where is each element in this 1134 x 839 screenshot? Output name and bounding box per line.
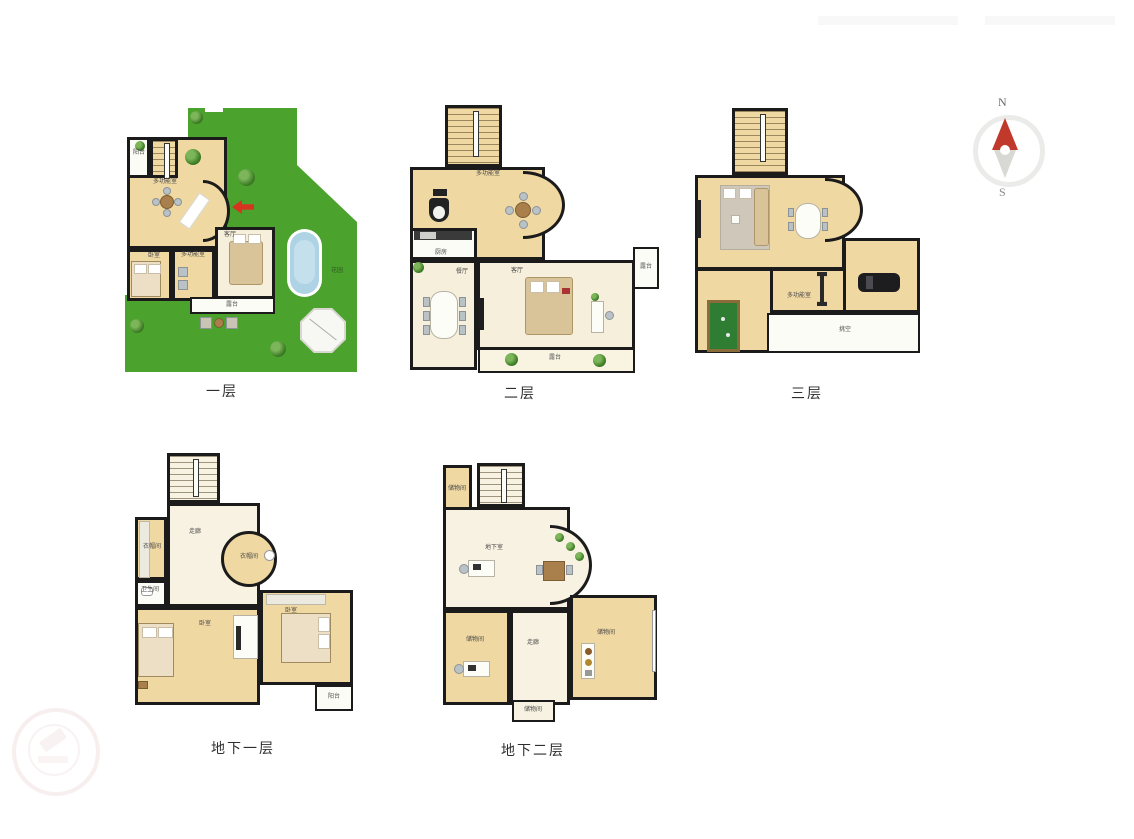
chair-icon <box>788 208 794 217</box>
room-label: 餐厅 <box>456 269 468 275</box>
table-icon <box>543 561 565 581</box>
desk-icon <box>591 301 604 333</box>
room-label: 卧室 <box>285 608 297 614</box>
room-curve <box>825 178 863 242</box>
tv-icon <box>479 298 484 330</box>
chair-icon <box>519 220 528 229</box>
window-icon <box>652 610 656 672</box>
room-bath <box>135 580 167 607</box>
room-label: 露台 <box>226 302 238 308</box>
room-label: 衣帽间 <box>143 544 161 550</box>
room-label: 走廊 <box>189 529 201 535</box>
plan-basement-2: 储物间 地下室 储物间 走廊 储物间 储物间 地下二层 <box>435 455 660 755</box>
chair-icon <box>788 222 794 231</box>
plan-floor-2: 多功能室 厨房 餐厅 客厅 露台 露台 二层 <box>405 95 680 395</box>
kitchen-counter-icon <box>414 231 472 240</box>
room-label: 露台 <box>549 355 561 361</box>
plan-floor-1: 阳台 多功能室 卧室 多功能室 客厅 露台 花园 一层 <box>110 95 390 395</box>
garden-gate-gap <box>205 104 223 112</box>
chair-icon <box>459 297 466 307</box>
plant-icon <box>190 111 203 124</box>
stairs <box>732 108 788 175</box>
text-watermark <box>818 16 958 25</box>
room-label: 储物间 <box>597 630 615 636</box>
room-label: 衣帽间 <box>240 554 258 560</box>
floorplan-sheet: 阳台 多功能室 卧室 多功能室 客厅 露台 花园 一层 <box>0 0 1134 839</box>
bed-icon <box>138 623 174 677</box>
chair-icon <box>454 664 464 674</box>
desk-icon <box>463 661 490 677</box>
plant-icon <box>130 319 144 333</box>
room-label: 挑空 <box>839 327 851 333</box>
plant-icon <box>593 354 606 367</box>
chair-icon <box>822 208 828 217</box>
sofa-icon <box>229 241 263 285</box>
chair-icon <box>423 311 430 321</box>
tv-icon <box>697 200 701 238</box>
stairs <box>150 138 178 178</box>
room-label: 卧室 <box>199 621 211 627</box>
room-label: 露台 <box>640 264 652 270</box>
cabinet-icon <box>178 267 188 277</box>
dining-table-icon <box>795 203 821 239</box>
room-label: 储物间 <box>466 637 484 643</box>
chair-icon <box>505 206 514 215</box>
dining-table-icon <box>430 291 458 339</box>
plant-icon <box>270 341 286 357</box>
cistern-icon <box>433 189 447 196</box>
chair-icon <box>566 565 573 575</box>
room-label: 多功能室 <box>476 171 500 177</box>
round-table-icon <box>515 202 531 218</box>
room-label: 走廊 <box>527 640 539 646</box>
compass-north-label: N <box>998 95 1007 110</box>
pool-icon <box>290 232 319 294</box>
room-label: 多功能室 <box>787 293 811 299</box>
armchair-icon <box>723 188 736 199</box>
floor-caption: 地下二层 <box>501 740 565 760</box>
room-void <box>767 313 920 353</box>
room-label: 客厅 <box>224 232 236 238</box>
sofa-icon <box>525 277 573 335</box>
stairs <box>477 463 525 507</box>
plan-basement-1: 走廊 衣帽间 衣帽间 卫生间 卧室 卧室 阳台 地下一层 <box>125 435 355 755</box>
room-label: 阳台 <box>328 694 340 700</box>
chair-icon <box>163 187 171 195</box>
plant-icon <box>413 262 424 273</box>
plant-icon <box>591 293 599 301</box>
cabinet-icon <box>178 280 188 290</box>
chair-icon <box>174 198 182 206</box>
plant-icon <box>575 552 584 561</box>
car-icon <box>858 273 900 292</box>
room-label: 储物间 <box>524 707 542 713</box>
chair-icon <box>459 325 466 335</box>
stairs <box>445 105 502 167</box>
sofa-icon <box>754 188 769 246</box>
plan-floor-3: 多功能室 挑空 三层 <box>695 100 925 395</box>
chair-icon <box>459 311 466 321</box>
desk-icon <box>468 560 495 577</box>
room-label: 卧室 <box>148 253 160 259</box>
bed-icon <box>131 261 161 297</box>
room-label: 客厅 <box>511 268 523 274</box>
plant-icon <box>566 542 575 551</box>
room-label: 阳台 <box>133 150 145 156</box>
room-store-left <box>443 610 510 705</box>
floor-caption: 一层 <box>206 381 238 401</box>
plant-icon <box>238 169 255 186</box>
room-corridor <box>510 610 570 705</box>
plant-icon <box>505 353 518 366</box>
outdoor-chair-icon <box>200 317 212 329</box>
nightstand-icon <box>138 681 148 689</box>
chair-icon <box>605 311 614 320</box>
room-label: 地下室 <box>485 545 503 551</box>
armchair-icon <box>739 188 752 199</box>
room-label: 多功能室 <box>181 252 205 258</box>
toilet-icon <box>429 198 449 222</box>
floor-caption: 地下一层 <box>211 738 275 758</box>
room-label: 多功能室 <box>153 179 177 185</box>
chair-icon <box>423 297 430 307</box>
chair-icon <box>536 565 543 575</box>
plant-icon <box>555 533 564 542</box>
chair-icon <box>519 192 528 201</box>
floor-caption: 二层 <box>504 383 536 403</box>
coffee-table-icon <box>731 215 740 224</box>
plant-icon <box>185 149 201 165</box>
compass-south-label: S <box>999 185 1006 200</box>
room-label: 花园 <box>331 268 343 274</box>
room-label: 储物间 <box>448 486 466 492</box>
chair-icon <box>423 325 430 335</box>
chair-icon <box>152 198 160 206</box>
billiard-table-icon <box>707 300 740 352</box>
floor-caption: 三层 <box>791 383 823 403</box>
chair-icon <box>459 564 469 574</box>
seal-watermark <box>12 708 100 796</box>
stairs <box>167 453 220 503</box>
shelf-icon <box>581 643 595 679</box>
room-label: 厨房 <box>435 250 447 256</box>
chair-icon <box>163 209 171 217</box>
chair-icon <box>822 222 828 231</box>
outdoor-chair-icon <box>226 317 238 329</box>
round-table-icon <box>160 195 174 209</box>
bed-icon <box>281 613 331 663</box>
compass-hub <box>1000 145 1010 155</box>
room-multi <box>770 268 846 313</box>
text-watermark <box>985 16 1115 25</box>
tv-cabinet-icon <box>233 615 258 659</box>
compass: N S <box>965 95 1045 215</box>
chair-icon <box>532 206 541 215</box>
room-label: 卫生间 <box>141 587 159 593</box>
outdoor-table-icon <box>214 318 224 328</box>
